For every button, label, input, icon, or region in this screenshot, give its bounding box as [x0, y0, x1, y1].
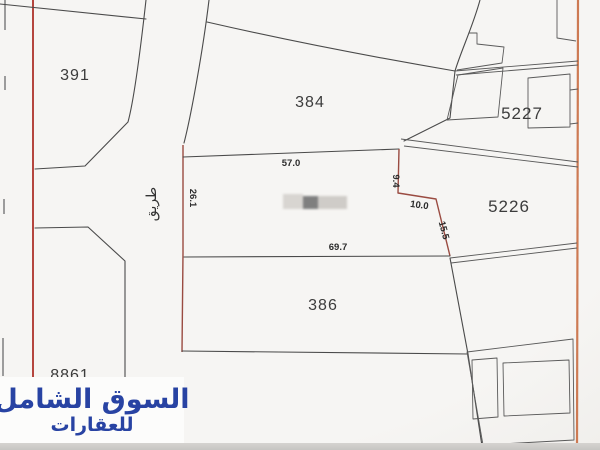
parcel-5227-west-outline	[447, 68, 503, 120]
lane-north-of-5227-b	[456, 65, 578, 75]
plot-386-label: 386	[308, 297, 338, 314]
lane-north-of-5227-a	[455, 61, 578, 71]
plot-386-south-boundary	[182, 351, 468, 354]
measurement-right-10-0: 10.0	[409, 199, 429, 212]
measurement-top-57: 57.0	[282, 158, 301, 169]
plot-384-label: 384	[295, 94, 325, 111]
road-network	[0, 0, 209, 377]
plot-5227-label: 5227	[501, 104, 543, 123]
measurement-left-26-1: 26.1	[187, 189, 198, 208]
road-left-edge	[35, 0, 146, 169]
watermark-subtitle: للعقارات	[51, 415, 134, 436]
watermark-banner: السوق الشامل للعقارات	[0, 377, 184, 443]
top-left-boundary-line	[0, 4, 146, 19]
building-parcel-outline	[467, 339, 574, 445]
measured-plot-top-edge	[183, 149, 399, 157]
plot-391-label: 391	[60, 67, 90, 84]
lane-north-of-5226-b	[404, 146, 578, 167]
plot-384-east-boundary	[404, 0, 480, 141]
lane-north-of-5226-a	[401, 139, 578, 162]
red-boundary-right	[577, 0, 578, 450]
road-right-edge	[184, 0, 209, 143]
road-name-label: طريق	[144, 187, 160, 221]
plot-384-north-boundary	[207, 22, 455, 71]
cadastral-map-image: 391 384 5227 5226 386 8861 57.0 69.7 26.…	[0, 0, 600, 450]
scan-artifact-strip	[0, 443, 600, 450]
measurement-right-9-4: 9.4	[390, 174, 401, 188]
redacted-area	[283, 194, 347, 209]
measurement-right-15-5: 15.5	[436, 220, 452, 241]
lower-plot-boundaries	[182, 258, 574, 446]
measurement-bottom-69-7: 69.7	[329, 242, 348, 253]
watermark-title: السوق الشامل	[0, 385, 190, 415]
plot-386-east-boundary	[450, 258, 482, 446]
upper-plot-boundaries	[207, 0, 578, 167]
road-right-edge-lower	[182, 145, 183, 352]
northeast-corner-parcel	[557, 0, 576, 41]
paper-edge-marks	[3, 0, 5, 376]
stepped-parcel-outline	[457, 33, 504, 70]
road-west-branch-edge	[35, 227, 125, 377]
building-footprint-large	[503, 360, 570, 416]
measured-plot-bottom-edge	[184, 256, 450, 257]
plot-5226-label: 5226	[488, 197, 530, 216]
building-footprint-small	[472, 358, 498, 419]
